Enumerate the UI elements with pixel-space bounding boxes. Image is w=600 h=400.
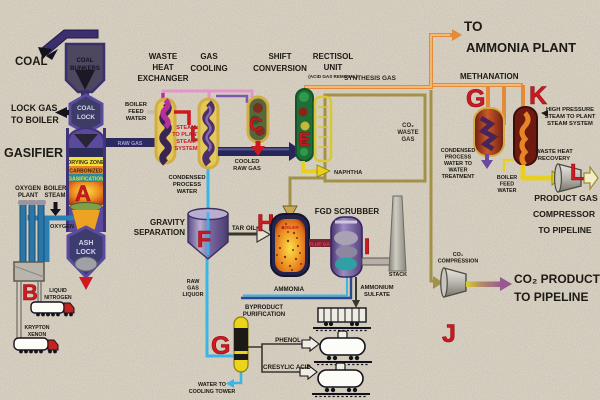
svg-text:SYSTEM: SYSTEM	[174, 146, 197, 152]
svg-text:B: B	[22, 280, 38, 305]
svg-text:BUNKERS: BUNKERS	[70, 66, 100, 72]
svg-text:HEAT: HEAT	[152, 63, 173, 72]
svg-text:WATER: WATER	[126, 116, 147, 122]
svg-text:F: F	[197, 226, 211, 252]
svg-text:L: L	[570, 159, 584, 185]
svg-text:CONDENSED: CONDENSED	[168, 175, 205, 181]
svg-text:ASH: ASH	[79, 240, 94, 247]
svg-text:WATER TO: WATER TO	[444, 161, 472, 167]
svg-text:TO BOILER: TO BOILER	[11, 115, 59, 125]
svg-text:XENON: XENON	[28, 332, 47, 338]
svg-text:BYPRODUCT: BYPRODUCT	[245, 305, 283, 311]
svg-text:TO PIPELINE: TO PIPELINE	[514, 290, 588, 304]
svg-text:(ACID GAS REMOVAL): (ACID GAS REMOVAL)	[308, 74, 358, 79]
svg-text:GRAVITY: GRAVITY	[150, 218, 186, 227]
svg-text:COAL: COAL	[15, 56, 48, 68]
svg-text:SULFATE: SULFATE	[364, 292, 390, 298]
svg-text:GAS: GAS	[187, 286, 199, 292]
svg-text:COMPRESSION: COMPRESSION	[438, 259, 479, 265]
svg-text:STEAM TO PLANT: STEAM TO PLANT	[545, 114, 596, 120]
svg-text:CO₂: CO₂	[402, 123, 414, 129]
svg-text:GASIFIER: GASIFIER	[4, 146, 63, 160]
svg-text:EXCHANGER: EXCHANGER	[137, 74, 188, 83]
svg-text:LIQUID: LIQUID	[49, 288, 67, 294]
svg-text:TREATMENT: TREATMENT	[442, 174, 476, 180]
svg-text:PRODUCT GAS: PRODUCT GAS	[534, 193, 598, 203]
svg-text:PROCESS: PROCESS	[445, 155, 472, 161]
svg-text:RAW: RAW	[187, 279, 200, 285]
svg-text:WATER: WATER	[448, 168, 467, 174]
svg-text:CONVERSION: CONVERSION	[253, 64, 307, 73]
svg-text:AMMONIUM: AMMONIUM	[360, 285, 393, 291]
svg-text:CRESYLIC ACID: CRESYLIC ACID	[263, 364, 311, 371]
svg-text:PROCESS: PROCESS	[173, 182, 201, 188]
svg-text:PHENOL: PHENOL	[275, 337, 301, 344]
svg-text:C: C	[249, 115, 263, 136]
svg-text:WATER: WATER	[497, 188, 516, 194]
svg-text:BOILER: BOILER	[44, 186, 67, 192]
svg-text:OXYGEN: OXYGEN	[50, 224, 74, 230]
svg-text:NAPHTHA: NAPHTHA	[334, 170, 363, 176]
svg-text:PURIFICATION: PURIFICATION	[243, 312, 285, 318]
svg-text:HIGH PRESSURE: HIGH PRESSURE	[546, 107, 594, 113]
svg-text:COMPRESSOR: COMPRESSOR	[533, 209, 596, 219]
svg-text:STACK: STACK	[389, 272, 407, 278]
svg-text:KRYPTON: KRYPTON	[24, 325, 49, 331]
svg-text:A: A	[75, 181, 91, 206]
svg-text:TO: TO	[464, 19, 483, 34]
svg-text:GAS: GAS	[401, 137, 414, 143]
svg-text:COAL: COAL	[77, 105, 95, 112]
svg-text:OXYGEN: OXYGEN	[15, 186, 41, 192]
svg-text:COOLED: COOLED	[235, 159, 260, 165]
svg-text:FEED: FEED	[500, 182, 514, 188]
svg-text:RAW GAS: RAW GAS	[233, 166, 261, 172]
svg-text:AMMONIA PLANT: AMMONIA PLANT	[466, 40, 576, 55]
svg-text:BOILER: BOILER	[125, 102, 148, 108]
svg-text:CO₂: CO₂	[453, 252, 464, 258]
svg-text:LIQUOR: LIQUOR	[183, 292, 204, 298]
svg-text:WASTE: WASTE	[149, 52, 178, 61]
svg-text:WASTE: WASTE	[397, 130, 418, 136]
svg-text:E: E	[298, 130, 311, 151]
svg-text:TO PIPELINE: TO PIPELINE	[538, 225, 592, 235]
svg-text:METHANATION: METHANATION	[460, 72, 519, 81]
svg-text:STEAM: STEAM	[45, 193, 66, 199]
svg-text:WASTE HEAT: WASTE HEAT	[535, 149, 573, 155]
svg-text:RECTISOL: RECTISOL	[313, 52, 354, 61]
svg-text:COAL: COAL	[77, 58, 94, 64]
svg-text:WATER: WATER	[177, 189, 198, 195]
svg-text:SEPARATION: SEPARATION	[134, 228, 185, 237]
svg-text:CONDENSED: CONDENSED	[441, 148, 476, 154]
svg-text:GAS: GAS	[200, 52, 218, 61]
svg-text:PLANT: PLANT	[18, 193, 38, 199]
svg-text:STEAM SYSTEM: STEAM SYSTEM	[547, 121, 593, 127]
svg-text:FLUE GAS: FLUE GAS	[309, 242, 332, 247]
svg-text:G: G	[211, 332, 230, 360]
svg-text:NITROGEN: NITROGEN	[44, 295, 72, 301]
svg-text:UNIT: UNIT	[324, 63, 343, 72]
svg-text:SHIFT: SHIFT	[268, 52, 291, 61]
svg-text:BOILER: BOILER	[281, 225, 299, 230]
svg-text:RECOVERY: RECOVERY	[538, 156, 570, 162]
svg-text:CARBONIZED: CARBONIZED	[69, 169, 103, 175]
svg-text:AMMONIA: AMMONIA	[274, 286, 305, 293]
svg-text:COOLING: COOLING	[190, 64, 227, 73]
svg-text:LOCK GAS: LOCK GAS	[11, 103, 58, 113]
svg-text:RAW GAS: RAW GAS	[118, 141, 143, 147]
svg-text:FGD SCRUBBER: FGD SCRUBBER	[315, 207, 380, 216]
svg-text:LOCK: LOCK	[76, 249, 96, 256]
svg-text:COOLING TOWER: COOLING TOWER	[189, 389, 236, 395]
svg-text:K: K	[529, 82, 547, 110]
svg-text:LOCK: LOCK	[77, 114, 95, 121]
svg-text:TAR OIL: TAR OIL	[232, 225, 257, 232]
svg-text:FEED: FEED	[128, 109, 143, 115]
svg-text:I: I	[364, 234, 370, 259]
svg-text:CO₂ PRODUCT: CO₂ PRODUCT	[514, 272, 600, 286]
svg-text:BOILER: BOILER	[497, 175, 517, 181]
svg-text:J: J	[442, 320, 456, 348]
svg-text:WATER TO: WATER TO	[198, 382, 226, 388]
svg-text:DRYING ZONE: DRYING ZONE	[67, 160, 105, 166]
